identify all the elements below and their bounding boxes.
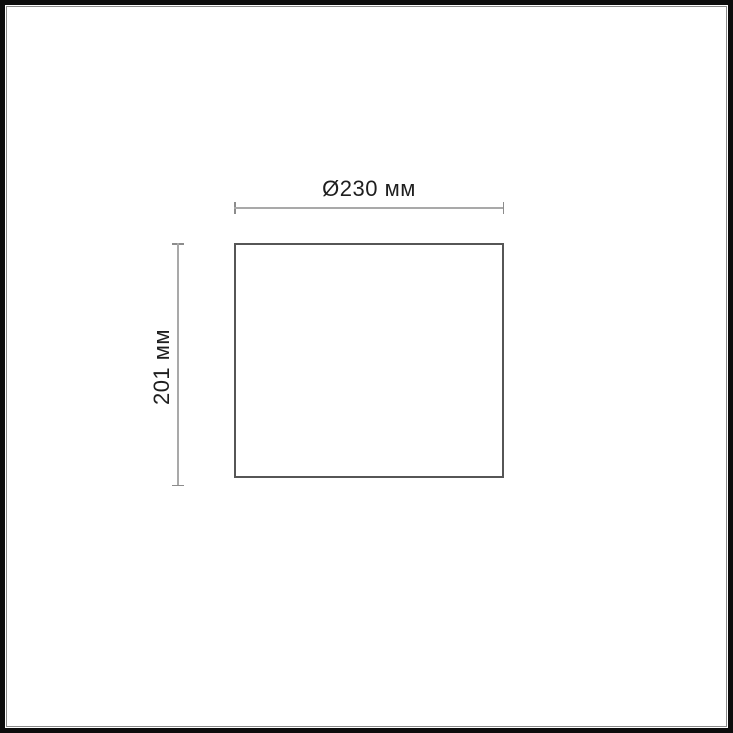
width-dimension-label: Ø230 мм (234, 176, 504, 202)
product-outline-rectangle (234, 243, 504, 478)
height-dimension-rule (177, 243, 179, 486)
width-dimension-rule (234, 207, 504, 209)
height-dimension-bottom-tick (172, 485, 184, 487)
width-dimension-right-tick (503, 202, 505, 214)
height-dimension-label: 201 мм (149, 329, 175, 405)
dimension-diagram: Ø230 мм 201 мм (0, 0, 733, 733)
width-dimension-line (234, 202, 504, 214)
